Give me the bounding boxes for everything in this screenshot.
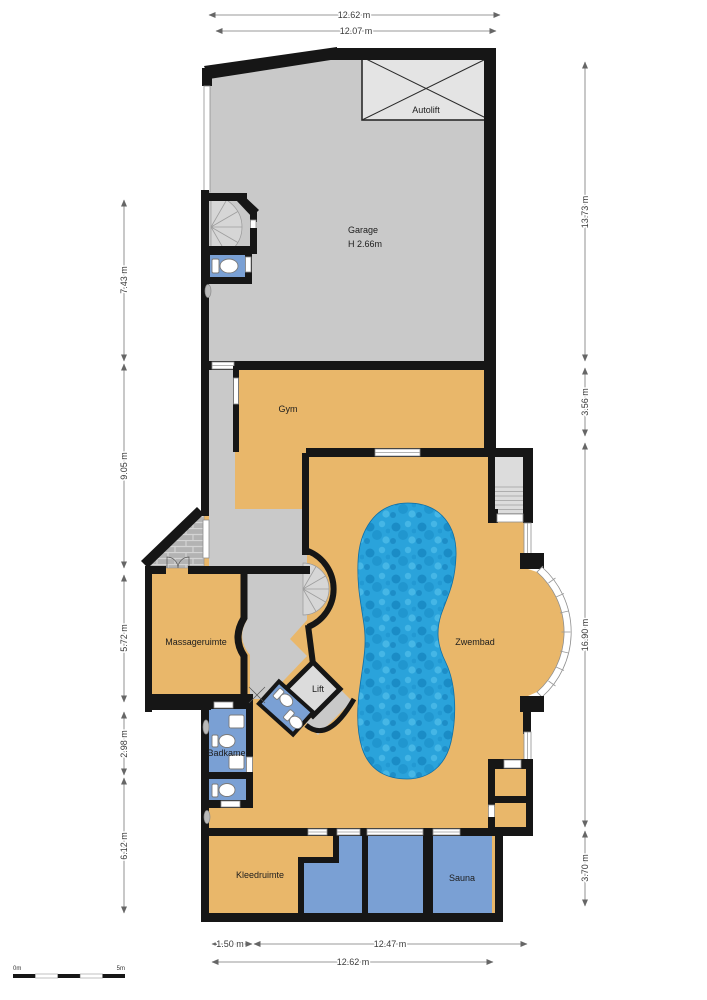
scale-end-label: 5m: [117, 966, 125, 972]
dim-left-2: 5.72 m: [119, 624, 129, 652]
dim-right-2: 16.90 m: [580, 619, 590, 652]
scale-start-label: 0m: [13, 966, 21, 972]
dim-bottom-1: 12.47 m: [374, 939, 407, 949]
label-garage: Garage: [348, 225, 378, 235]
floorplan-page: Garage H 2.66m Autolift Gym Massageruimt…: [0, 0, 707, 1000]
label-massageruimte: Massageruimte: [165, 637, 227, 647]
label-lift: Lift: [312, 684, 325, 694]
entrance-pavers: [148, 515, 204, 568]
dim-right-3: 3.70 m: [580, 854, 590, 882]
small-room-lower-floor: [497, 803, 526, 828]
dim-bottom-0: 1.50 m: [216, 939, 244, 949]
dim-right-0: 13.73 m: [580, 196, 590, 229]
dim-top-0: 12.62 m: [338, 10, 371, 20]
dim-left-1: 9.05 m: [119, 452, 129, 480]
stairs-right: [495, 457, 525, 514]
dim-right-1: 3.56 m: [580, 388, 590, 416]
label-zwembad: Zwembad: [455, 637, 495, 647]
dim-left-4: 6.12 m: [119, 832, 129, 860]
label-autolift: Autolift: [412, 105, 440, 115]
floorplan-drawing: Garage H 2.66m Autolift Gym Massageruimt…: [0, 0, 707, 1000]
scale-bar: 0m 5m: [13, 966, 125, 978]
label-garage-height: H 2.66m: [348, 239, 382, 249]
dim-top-1: 12.07 m: [340, 26, 373, 36]
room-steam: [368, 836, 423, 916]
label-kleedruimte: Kleedruimte: [236, 870, 284, 880]
label-badkamer: Badkamer: [207, 748, 248, 758]
dim-bottom-2: 12.62 m: [337, 957, 370, 967]
small-room-upper-floor: [497, 769, 526, 797]
dim-left-3: 2.98 m: [119, 730, 129, 758]
label-sauna: Sauna: [449, 873, 475, 883]
label-gym: Gym: [279, 404, 298, 414]
dim-left-0: 7.43 m: [119, 266, 129, 294]
